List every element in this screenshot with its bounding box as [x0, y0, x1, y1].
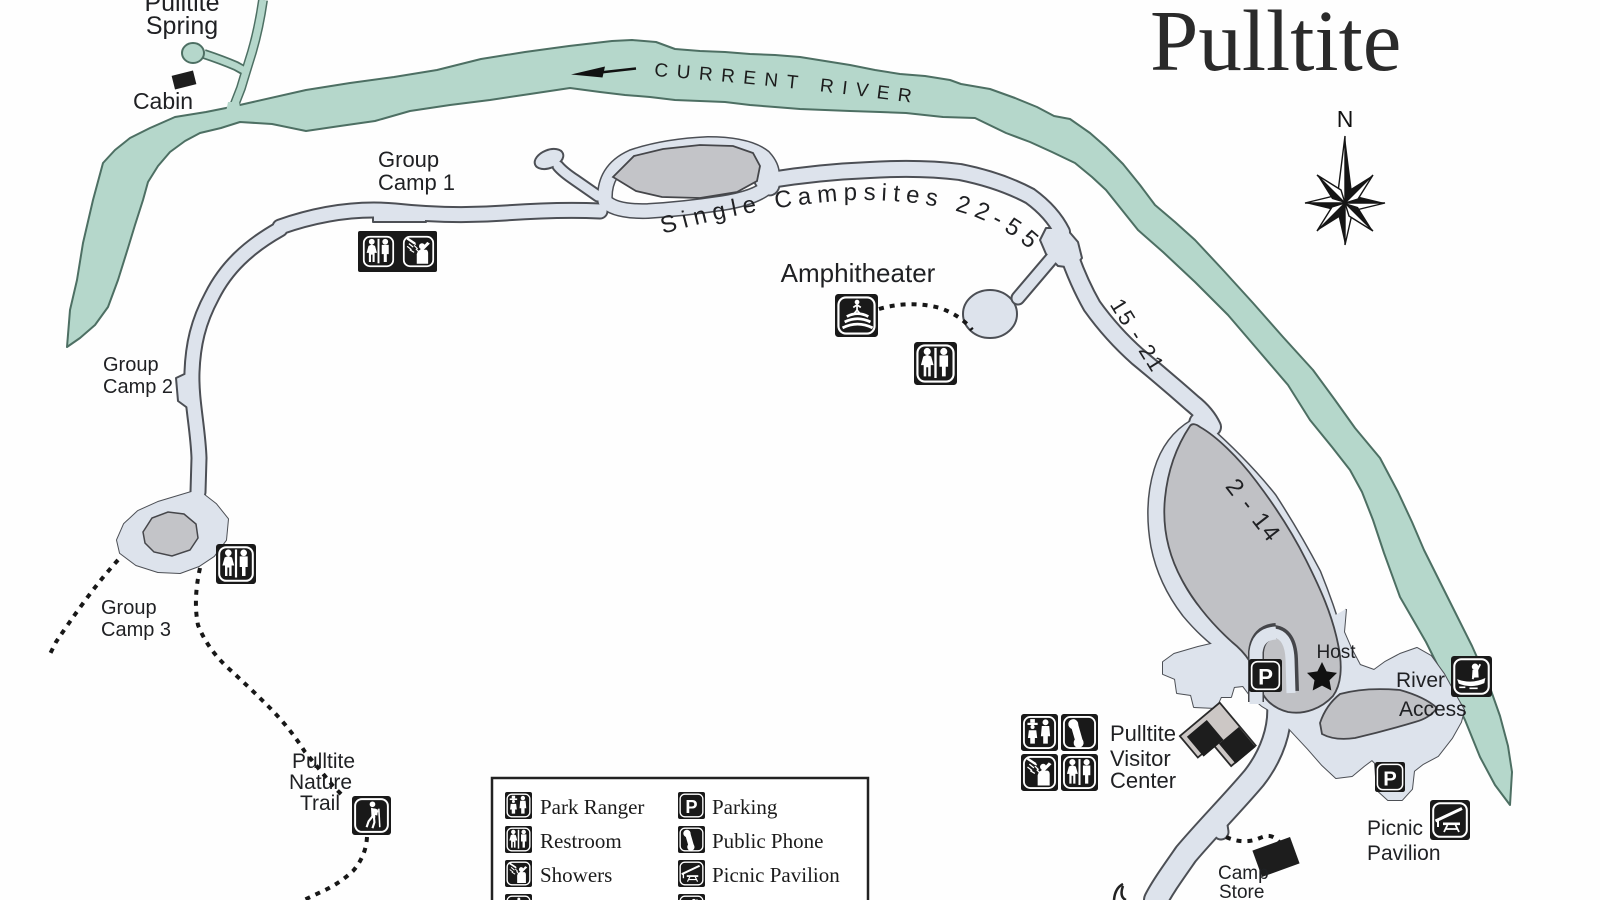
svg-text:Group: Group [378, 147, 439, 172]
svg-text:Center: Center [1110, 768, 1176, 793]
svg-text:Host: Host [1316, 642, 1356, 663]
svg-text:Cabin: Cabin [133, 88, 193, 114]
svg-text:Nature: Nature [289, 771, 352, 794]
svg-text:Pulltite: Pulltite [292, 750, 355, 773]
svg-text:Camp 3: Camp 3 [101, 619, 171, 641]
svg-text:Picnic Pavilion: Picnic Pavilion [712, 863, 840, 887]
svg-text:Camp: Camp [1218, 863, 1269, 884]
svg-text:Pulltite: Pulltite [1110, 721, 1176, 746]
svg-text:Showers: Showers [540, 863, 612, 887]
svg-text:Picnic: Picnic [1367, 817, 1423, 840]
svg-text:Group: Group [101, 597, 157, 619]
svg-text:Public Phone: Public Phone [712, 829, 823, 853]
svg-text:Restroom: Restroom [540, 829, 622, 853]
svg-text:Amphitheater: Amphitheater [781, 258, 936, 288]
svg-text:N: N [1337, 106, 1354, 132]
svg-text:Access: Access [1399, 698, 1467, 721]
svg-text:Trail: Trail [300, 792, 340, 815]
svg-text:Pulltite: Pulltite [1150, 0, 1401, 89]
svg-text:Spring: Spring [146, 12, 218, 40]
svg-text:Camp 2: Camp 2 [103, 376, 173, 398]
svg-text:Group: Group [103, 354, 159, 376]
svg-text:River: River [1396, 669, 1445, 692]
svg-text:Pavilion: Pavilion [1367, 842, 1441, 865]
svg-text:Park Ranger: Park Ranger [540, 795, 644, 819]
svg-text:Camp 1: Camp 1 [378, 170, 455, 195]
svg-text:Parking: Parking [712, 795, 778, 819]
svg-text:Store: Store [1219, 882, 1264, 900]
